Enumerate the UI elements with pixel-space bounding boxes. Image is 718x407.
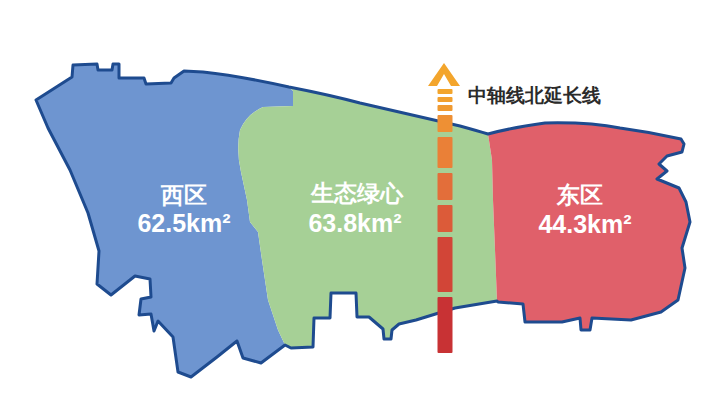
axis-label: 中轴线北延长线 [468, 85, 601, 106]
east-region-name: 东区 [556, 182, 603, 208]
axis-dash-segment [438, 89, 453, 94]
east-region-area: 44.3km² [538, 210, 631, 238]
axis-dash-segment [438, 205, 453, 232]
center-region-name: 生态绿心 [310, 180, 404, 206]
axis-dash-segment [438, 115, 453, 132]
axis-dash-segment [438, 297, 453, 353]
axis-dash-segment [438, 137, 453, 168]
axis-dash-segment [438, 173, 453, 200]
planning-map: 中轴线北延长线 西区 62.5km² 生态绿心 63.8km² 东区 44.3k… [0, 0, 718, 407]
north-arrow-icon [428, 63, 460, 86]
west-region-name: 西区 [160, 182, 207, 208]
map-svg: 中轴线北延长线 西区 62.5km² 生态绿心 63.8km² 东区 44.3k… [0, 0, 718, 407]
axis-dash-segment [438, 237, 453, 292]
west-region-area: 62.5km² [137, 209, 230, 237]
axis-dash-segment [438, 97, 453, 102]
center-region-area: 63.8km² [308, 209, 401, 237]
axis-dash-segment [438, 105, 453, 111]
